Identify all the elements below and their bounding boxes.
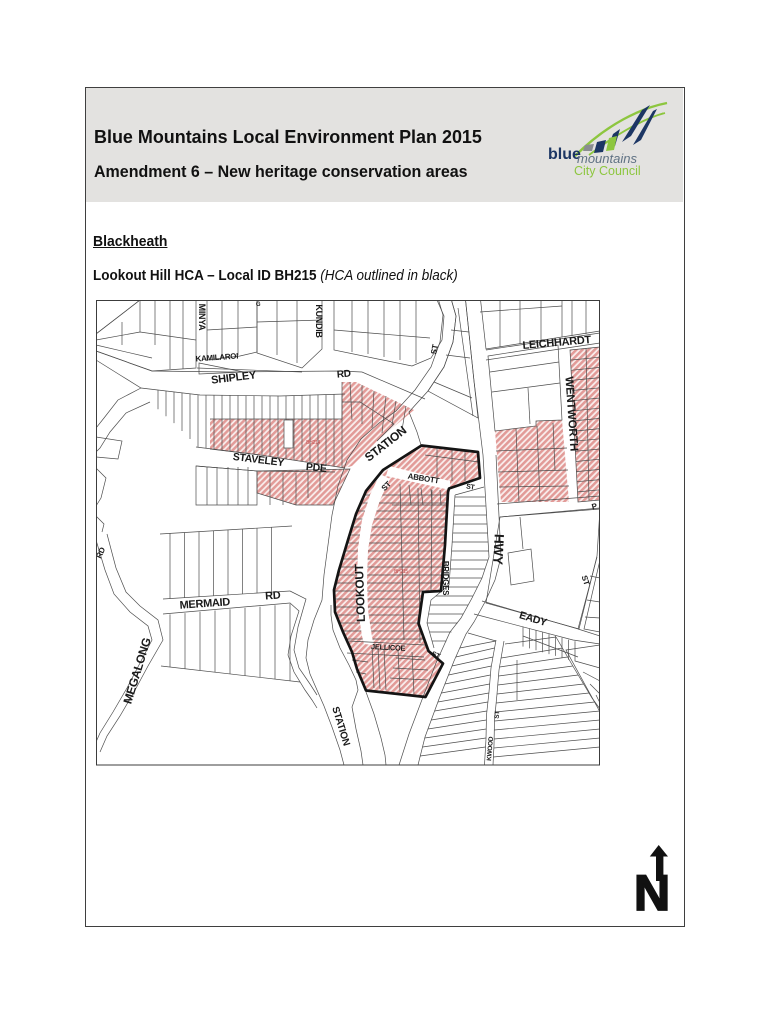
svg-text:KUNDIB: KUNDIB [314,304,324,338]
svg-text:RD: RD [336,368,351,380]
svg-text:MINYA: MINYA [197,304,207,331]
svg-text:PDE: PDE [305,461,327,475]
svg-text:City Council: City Council [574,164,641,178]
svg-text:BH214: BH214 [306,440,320,446]
svg-text:BRIDGES: BRIDGES [441,561,450,596]
svg-text:ST: ST [494,710,502,719]
svg-text:G: G [256,302,261,308]
svg-text:BH215: BH215 [394,569,408,575]
svg-text:RD: RD [265,589,281,602]
svg-text:HWY: HWY [490,534,507,566]
svg-text:N: N [634,865,670,918]
svg-text:LOOKOUT: LOOKOUT [352,563,368,622]
svg-text:JELLICOE: JELLICOE [371,642,406,653]
